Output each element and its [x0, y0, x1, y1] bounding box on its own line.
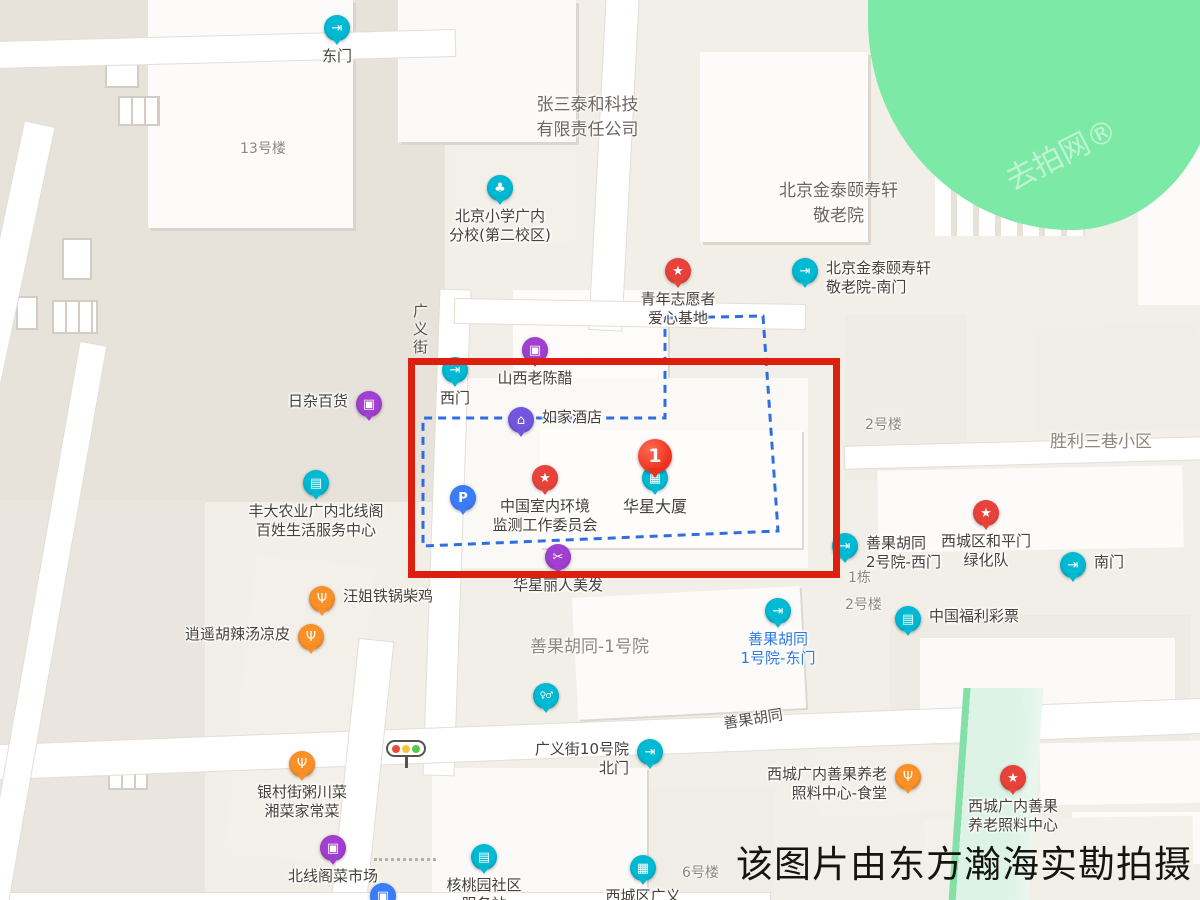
area-label-jingl aoyuan: 北京金泰颐寿轩 敬老院 [756, 176, 921, 226]
road [0, 342, 106, 900]
poi-shanguo-care-canteen[interactable]: Ψ 西城广内善果养老 照料中心-食堂 [895, 764, 921, 790]
store-icon: ▤ [895, 606, 921, 632]
food-icon: Ψ [298, 624, 324, 650]
poi-metro-station[interactable]: ▣ [370, 883, 396, 900]
poi-south-gate[interactable]: ⇥ 南门 [1060, 552, 1086, 578]
road [0, 30, 455, 68]
area-label-bldg2b: 2号楼 [845, 594, 882, 614]
store-icon: ▤ [471, 844, 497, 870]
gate-icon: ⇥ [637, 739, 663, 765]
gate-icon: ⇥ [792, 258, 818, 284]
fence-dashes [374, 858, 436, 861]
poi-nursing-home-south-gate[interactable]: ⇥ 北京金泰颐寿轩 敬老院-南门 [792, 258, 818, 284]
road [0, 122, 54, 549]
traffic-light-icon [386, 740, 426, 768]
star-icon: ★ [973, 500, 999, 526]
poi-beijing-primary-school[interactable]: ♣ 北京小学广内 分校(第二校区) [487, 175, 513, 201]
shopping-icon: ▣ [356, 391, 382, 417]
school-icon: ♣ [487, 175, 513, 201]
area-label-bldg2: 2号楼 [865, 414, 902, 434]
photo-credit-watermark: 该图片由东方瀚海实勘拍摄 [736, 834, 1192, 888]
gate-icon: ⇥ [324, 15, 350, 41]
poi-yincunjie-restaurant[interactable]: Ψ 银村街粥川菜 湘菜家常菜 [289, 751, 315, 777]
food-icon: Ψ [895, 764, 921, 790]
road [589, 0, 638, 331]
gate-icon: ⇥ [765, 598, 791, 624]
star-icon: ★ [1000, 765, 1026, 791]
gate-icon: ⇥ [1060, 552, 1086, 578]
metro-icon: ▣ [370, 883, 396, 900]
shopping-icon: ▣ [320, 835, 346, 861]
poi-fengda-service-center[interactable]: ▤ 丰大农业广内北线阁 百姓生活服务中心 [303, 470, 329, 496]
street-label-guangyijie: 广义街 [410, 303, 431, 357]
poi-hetaoyuan-service-station[interactable]: ▤ 核桃园社区 服务站 [471, 844, 497, 870]
map-canvas[interactable]: 去拍网® 去拍网® 广义街 善果胡同 13号楼 张三泰和科技 有限责任公司 北京… [0, 0, 1200, 900]
food-icon: Ψ [289, 751, 315, 777]
area-label-bldg13: 13号楼 [240, 138, 286, 158]
poi-xichengqu-guangyi[interactable]: ▦ 西城区广义 [630, 855, 656, 881]
poi-wangjie-chicken[interactable]: Ψ 汪姐铁锅柴鸡 [309, 586, 335, 612]
poi-volunteer-base[interactable]: ★ 青年志愿者 爱心基地 [665, 258, 691, 284]
road [455, 299, 805, 329]
star-icon: ★ [665, 258, 691, 284]
food-icon: Ψ [309, 586, 335, 612]
store-icon: ▤ [303, 470, 329, 496]
poi-xiaoyao-soup[interactable]: Ψ 逍遥胡辣汤凉皮 [298, 624, 324, 650]
poi-east-gate[interactable]: ⇥ 东门 [324, 15, 350, 41]
poi-shanguo-care-center[interactable]: ★ 西城广内善果 养老照料中心 [1000, 765, 1026, 791]
area-label-shanguo1: 善果胡同-1号院 [530, 632, 649, 657]
poi-beixiange-market[interactable]: ▣ 北线阁菜市场 [320, 835, 346, 861]
area-label-shengli: 胜利三巷小区 [1050, 427, 1152, 452]
area-label-bldg6: 6号楼 [682, 862, 719, 882]
toilet-icon: ♀♂ [533, 683, 559, 709]
poi-rizabaihuo[interactable]: ▣ 日杂百货 [356, 391, 382, 417]
poi-guangyijie10-north-gate[interactable]: ⇥ 广义街10号院 北门 [637, 739, 663, 765]
poi-heping-greening-team[interactable]: ★ 西城区和平门 绿化队 [973, 500, 999, 526]
area-label-zhangsantai: 张三泰和科技 有限责任公司 [505, 90, 670, 140]
building-icon: ▦ [630, 855, 656, 881]
poi-shanguo1-east-gate[interactable]: ⇥ 善果胡同 1号院-东门 [765, 598, 791, 624]
highlight-rectangle [408, 358, 840, 578]
poi-toilet[interactable]: ♀♂ [533, 683, 559, 709]
poi-welfare-lottery[interactable]: ▤ 中国福利彩票 [895, 606, 921, 632]
